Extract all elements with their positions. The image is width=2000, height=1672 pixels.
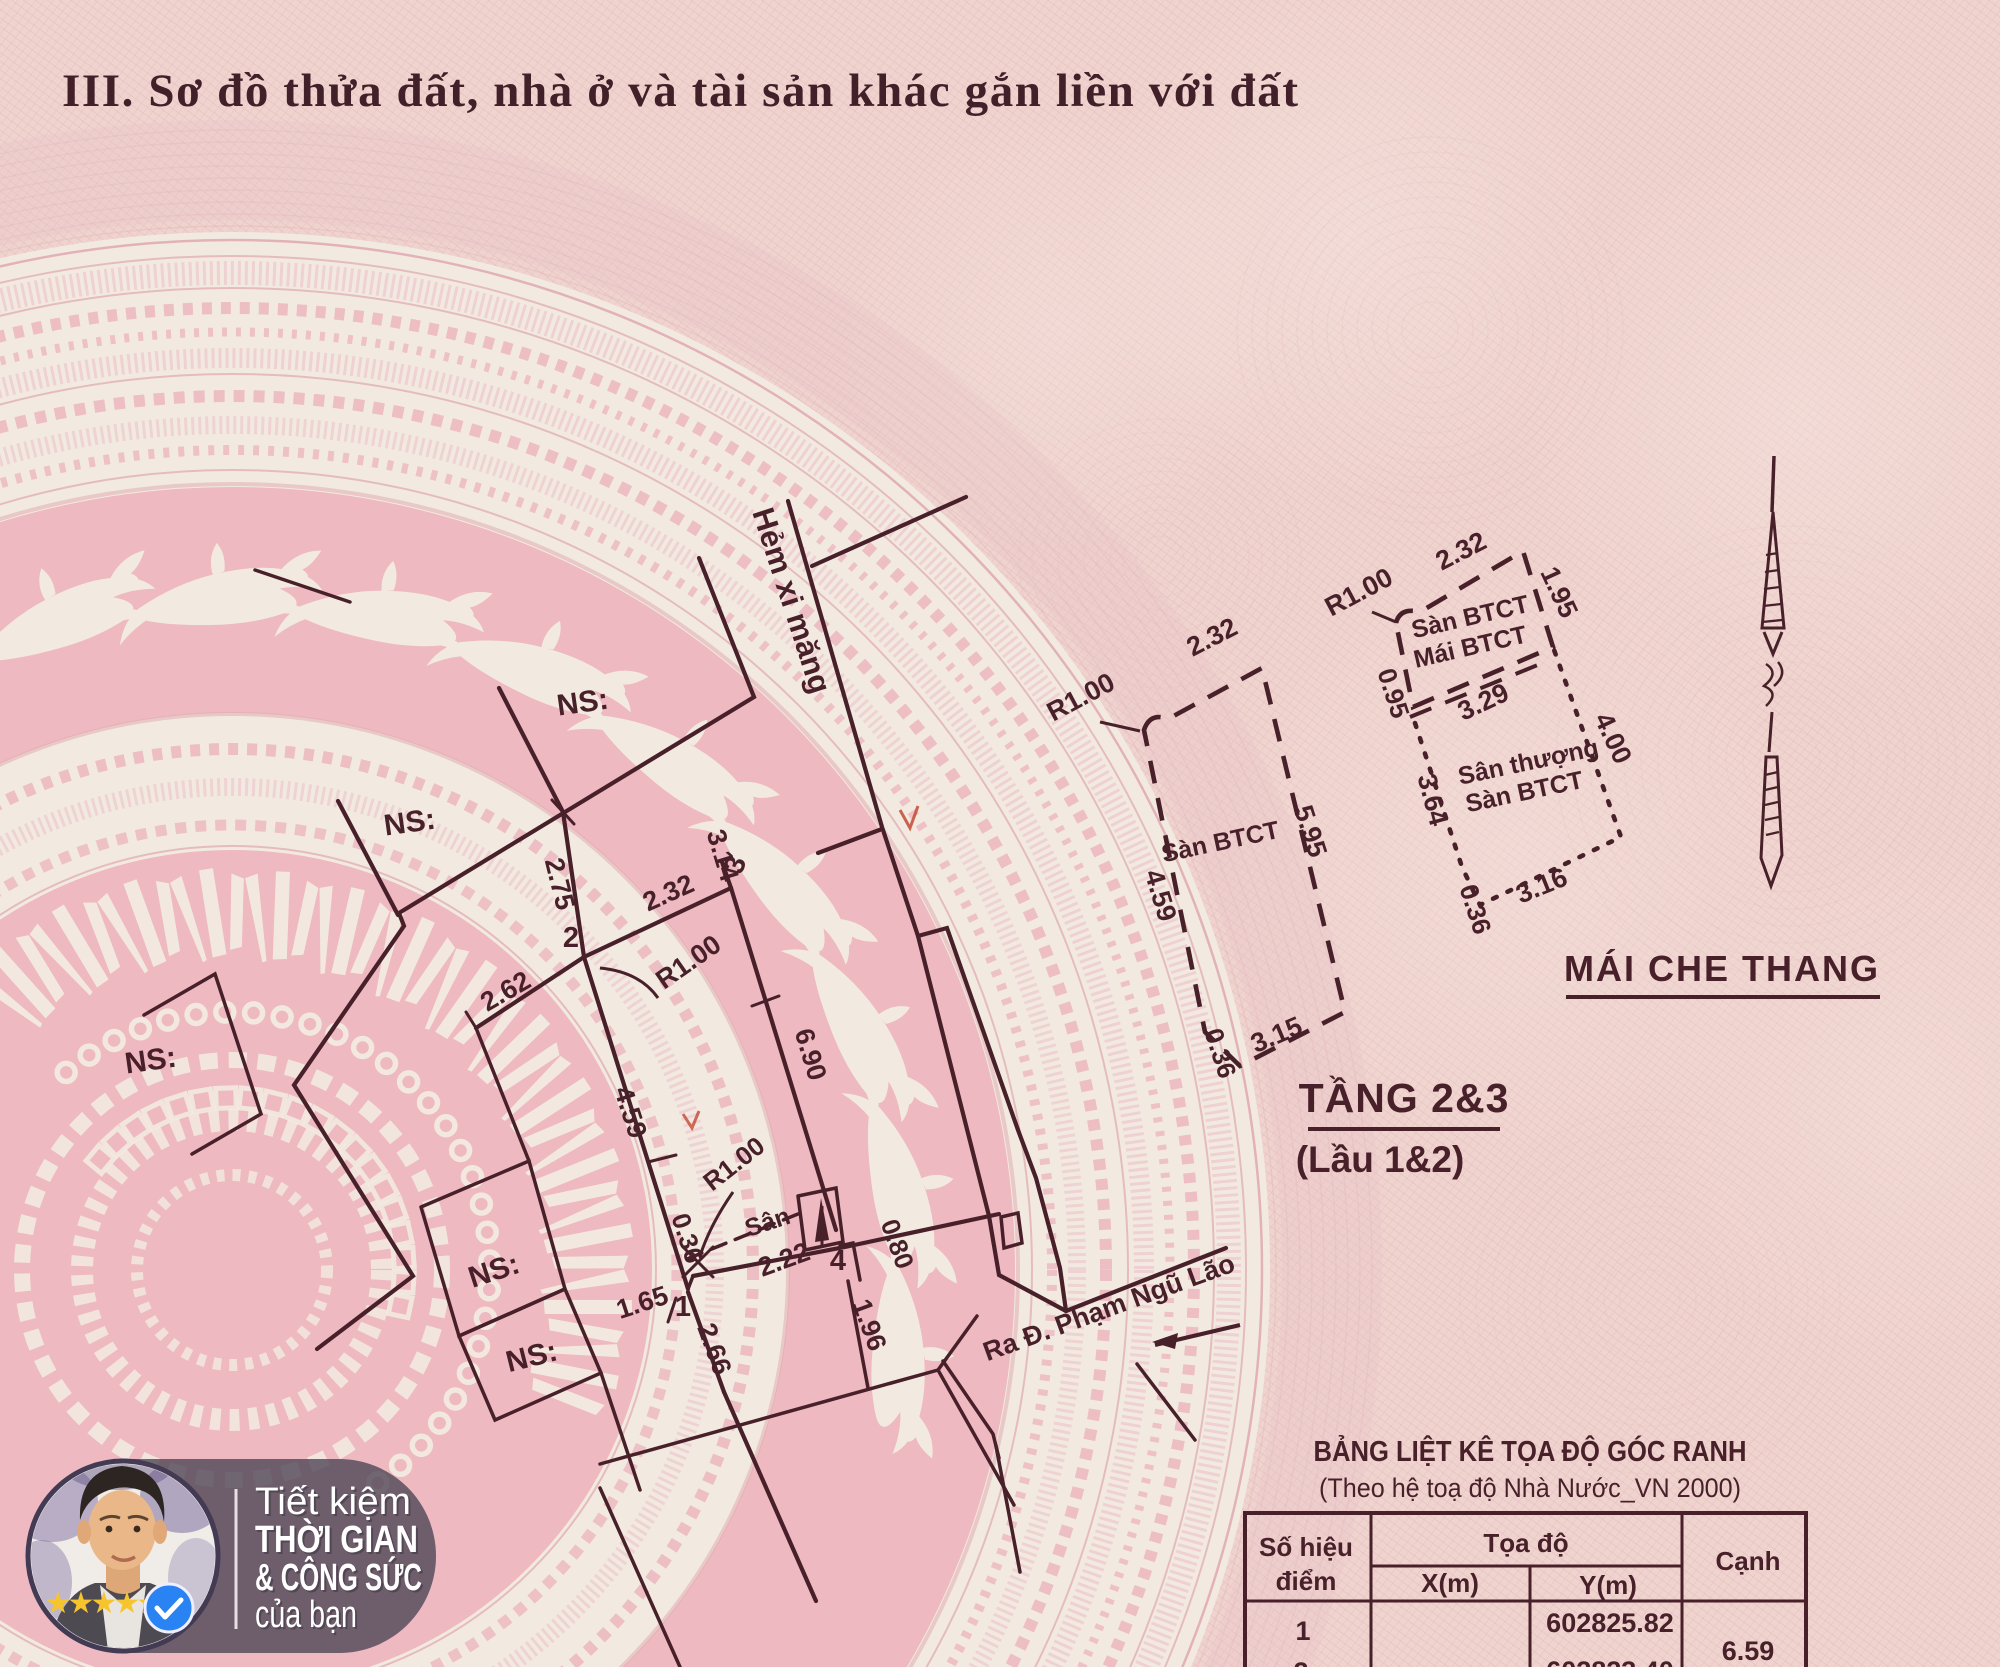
svg-text:4: 4	[830, 1245, 846, 1277]
svg-text:2: 2	[563, 922, 579, 954]
svg-text:(Lầu 1&2): (Lầu 1&2)	[1296, 1139, 1465, 1180]
svg-text:Số hiệu: Số hiệu	[1259, 1532, 1353, 1562]
svg-text:(Theo hệ toạ độ Nhà Nước_VN 20: (Theo hệ toạ độ Nhà Nước_VN 2000)	[1319, 1473, 1741, 1503]
svg-text:Tọa độ: Tọa độ	[1483, 1528, 1568, 1558]
svg-text:điểm: điểm	[1276, 1566, 1337, 1596]
svg-text:MÁI CHE THANG: MÁI CHE THANG	[1564, 948, 1880, 989]
svg-text:602825.82: 602825.82	[1546, 1608, 1674, 1638]
svg-text:X(m): X(m)	[1421, 1568, 1479, 1598]
svg-text:1: 1	[675, 1291, 691, 1323]
svg-text:Tiết kiệm: Tiết kiệm	[255, 1481, 411, 1523]
svg-text:III. Sơ đồ thửa đất, nhà ở và: III. Sơ đồ thửa đất, nhà ở và tài sản kh…	[62, 65, 1300, 117]
svg-text:THỜI GIAN: THỜI GIAN	[255, 1517, 418, 1561]
svg-text:BẢNG LIỆT KÊ TỌA ĐỘ GÓC RANH: BẢNG LIỆT KÊ TỌA ĐỘ GÓC RANH	[1314, 1434, 1747, 1468]
svg-text:Y(m): Y(m)	[1579, 1570, 1637, 1600]
svg-text:602823.40: 602823.40	[1546, 1656, 1674, 1667]
svg-text:6.59: 6.59	[1722, 1636, 1775, 1666]
svg-text:1: 1	[1295, 1616, 1310, 1646]
svg-text:Cạnh: Cạnh	[1716, 1546, 1781, 1576]
svg-text:2: 2	[1293, 1657, 1308, 1667]
svg-text:của bạn: của bạn	[255, 1594, 357, 1636]
svg-text:TẦNG 2&3: TẦNG 2&3	[1299, 1075, 1510, 1121]
svg-text:& CÔNG SỨC: & CÔNG SỨC	[255, 1554, 422, 1599]
